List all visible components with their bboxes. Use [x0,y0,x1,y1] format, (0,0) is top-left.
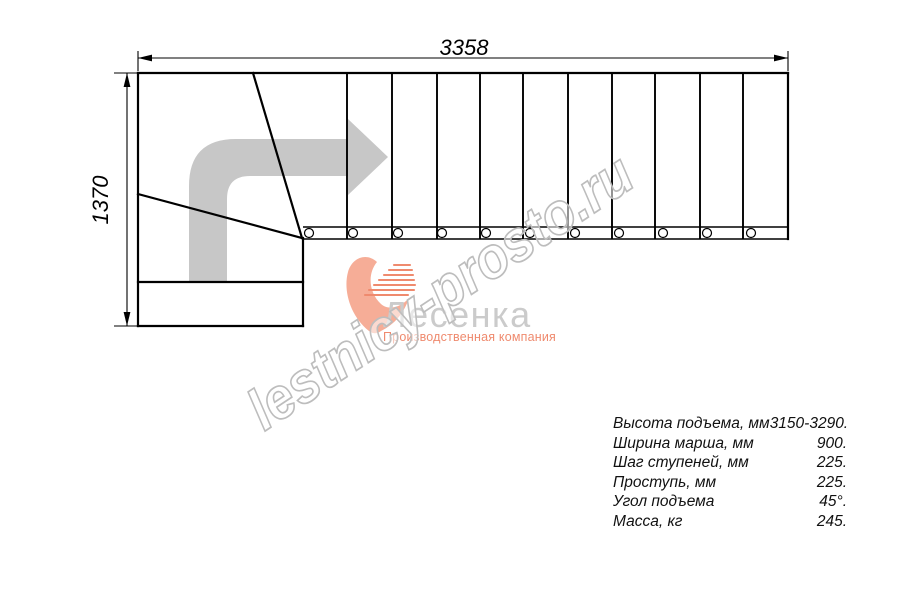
spec-label: Ширина марша, мм [613,434,754,454]
spec-row-tread: Проступь, мм 225. [613,473,847,493]
spec-label: Проступь, мм [613,473,716,493]
spec-label: Масса, кг [613,512,682,532]
staircase-drawing-page: 3358 1370 Лесенка Производственная ком [0,0,900,600]
spec-row-mass: Масса, кг 245. [613,512,847,532]
spec-value: 245. [817,512,847,532]
direction-arrow-icon [189,119,388,282]
spec-label: Шаг ступеней, мм [613,453,749,473]
watermark-text: lestnicy-prosto.ru [236,141,645,442]
spec-row-angle: Угол подъема 45°. [613,492,847,512]
dim-arrow-left-icon [138,55,152,62]
spec-label: Высота подъема, мм [613,414,770,434]
spec-row-height: Высота подъема, мм 3150-3290. [613,414,847,434]
dim-arrow-down-icon [124,312,131,326]
spec-row-flight-width: Ширина марша, мм 900. [613,434,847,454]
specs-table: Высота подъема, мм 3150-3290. Ширина мар… [613,414,847,531]
spec-value: 225. [817,453,847,473]
dim-arrow-up-icon [124,73,131,87]
dimension-width-label: 3358 [440,35,490,60]
spec-value: 900. [817,434,847,454]
spec-label: Угол подъема [613,492,714,512]
spec-value: 45°. [819,492,847,512]
spec-value: 225. [817,473,847,493]
spec-row-step-pitch: Шаг ступеней, мм 225. [613,453,847,473]
dimension-height-label: 1370 [88,175,113,225]
spec-value: 3150-3290. [770,414,848,434]
dim-arrow-right-icon [774,55,788,62]
left-dimension [114,73,138,326]
